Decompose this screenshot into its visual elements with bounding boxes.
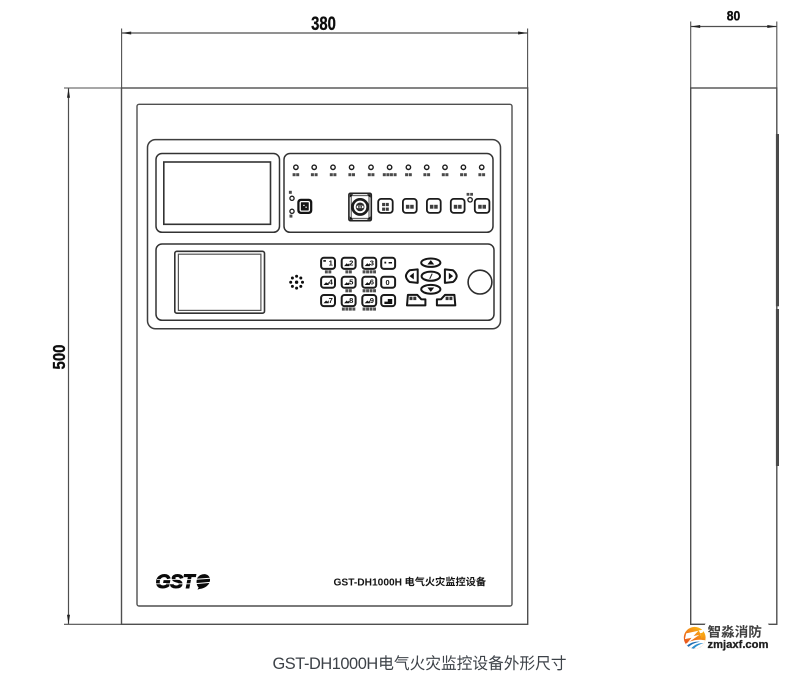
svg-text:7: 7 bbox=[329, 296, 333, 305]
svg-text:GST-DH1000H: GST-DH1000H bbox=[273, 655, 378, 673]
svg-text:0: 0 bbox=[386, 278, 390, 287]
svg-text:zmjaxf.com: zmjaxf.com bbox=[708, 639, 769, 651]
svg-text:80: 80 bbox=[727, 8, 741, 24]
svg-text:2: 2 bbox=[349, 259, 353, 268]
svg-text:380: 380 bbox=[311, 12, 336, 35]
svg-text:9: 9 bbox=[370, 296, 374, 305]
svg-text:500: 500 bbox=[50, 345, 69, 370]
svg-text:6: 6 bbox=[370, 278, 374, 287]
svg-text:8: 8 bbox=[349, 296, 353, 305]
svg-text:GST: GST bbox=[156, 571, 197, 593]
svg-text:3: 3 bbox=[370, 259, 374, 268]
svg-text:GST-DH1000H: GST-DH1000H bbox=[334, 577, 403, 588]
